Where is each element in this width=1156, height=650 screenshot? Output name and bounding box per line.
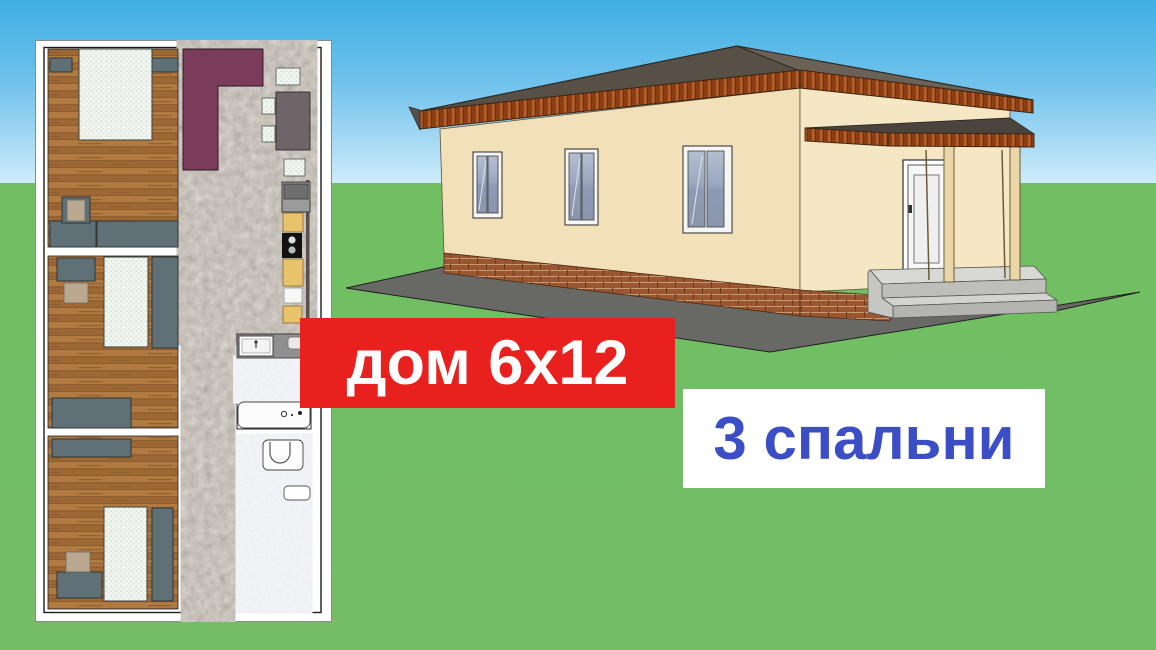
bed-2 bbox=[104, 257, 148, 347]
corridor bbox=[183, 334, 233, 609]
entry-hall bbox=[237, 483, 311, 609]
bedroom-2-chair bbox=[64, 283, 88, 303]
bedroom-2 bbox=[48, 256, 178, 428]
bedroom-3 bbox=[48, 436, 178, 609]
bedroom-1-chair bbox=[62, 197, 90, 223]
bedroom-3-chair bbox=[66, 552, 90, 572]
window-2 bbox=[565, 149, 598, 225]
bedrooms-banner: 3 спальни bbox=[683, 389, 1045, 488]
toilet bbox=[263, 440, 303, 470]
bedrooms-banner-label: 3 спальни bbox=[713, 409, 1014, 469]
kitchen-dining-room bbox=[183, 49, 311, 331]
steps bbox=[868, 266, 1057, 318]
entry-bench bbox=[284, 486, 310, 500]
house-render bbox=[340, 28, 1156, 360]
floor-plan bbox=[35, 40, 332, 622]
roof-trim-end-cap bbox=[409, 107, 420, 130]
window-1 bbox=[473, 152, 502, 218]
thumbnail-stage: дом 6х12 3 спальни bbox=[0, 0, 1156, 650]
sink bbox=[239, 336, 273, 356]
bedroom-1 bbox=[48, 49, 178, 247]
stove bbox=[282, 233, 302, 258]
bed-3 bbox=[104, 507, 147, 601]
size-banner: дом 6х12 bbox=[300, 318, 675, 408]
size-banner-label: дом 6х12 bbox=[347, 332, 629, 395]
dining-table bbox=[276, 92, 310, 150]
bed-1 bbox=[79, 49, 152, 140]
window-3 bbox=[683, 146, 732, 233]
toilet-room bbox=[237, 434, 311, 479]
